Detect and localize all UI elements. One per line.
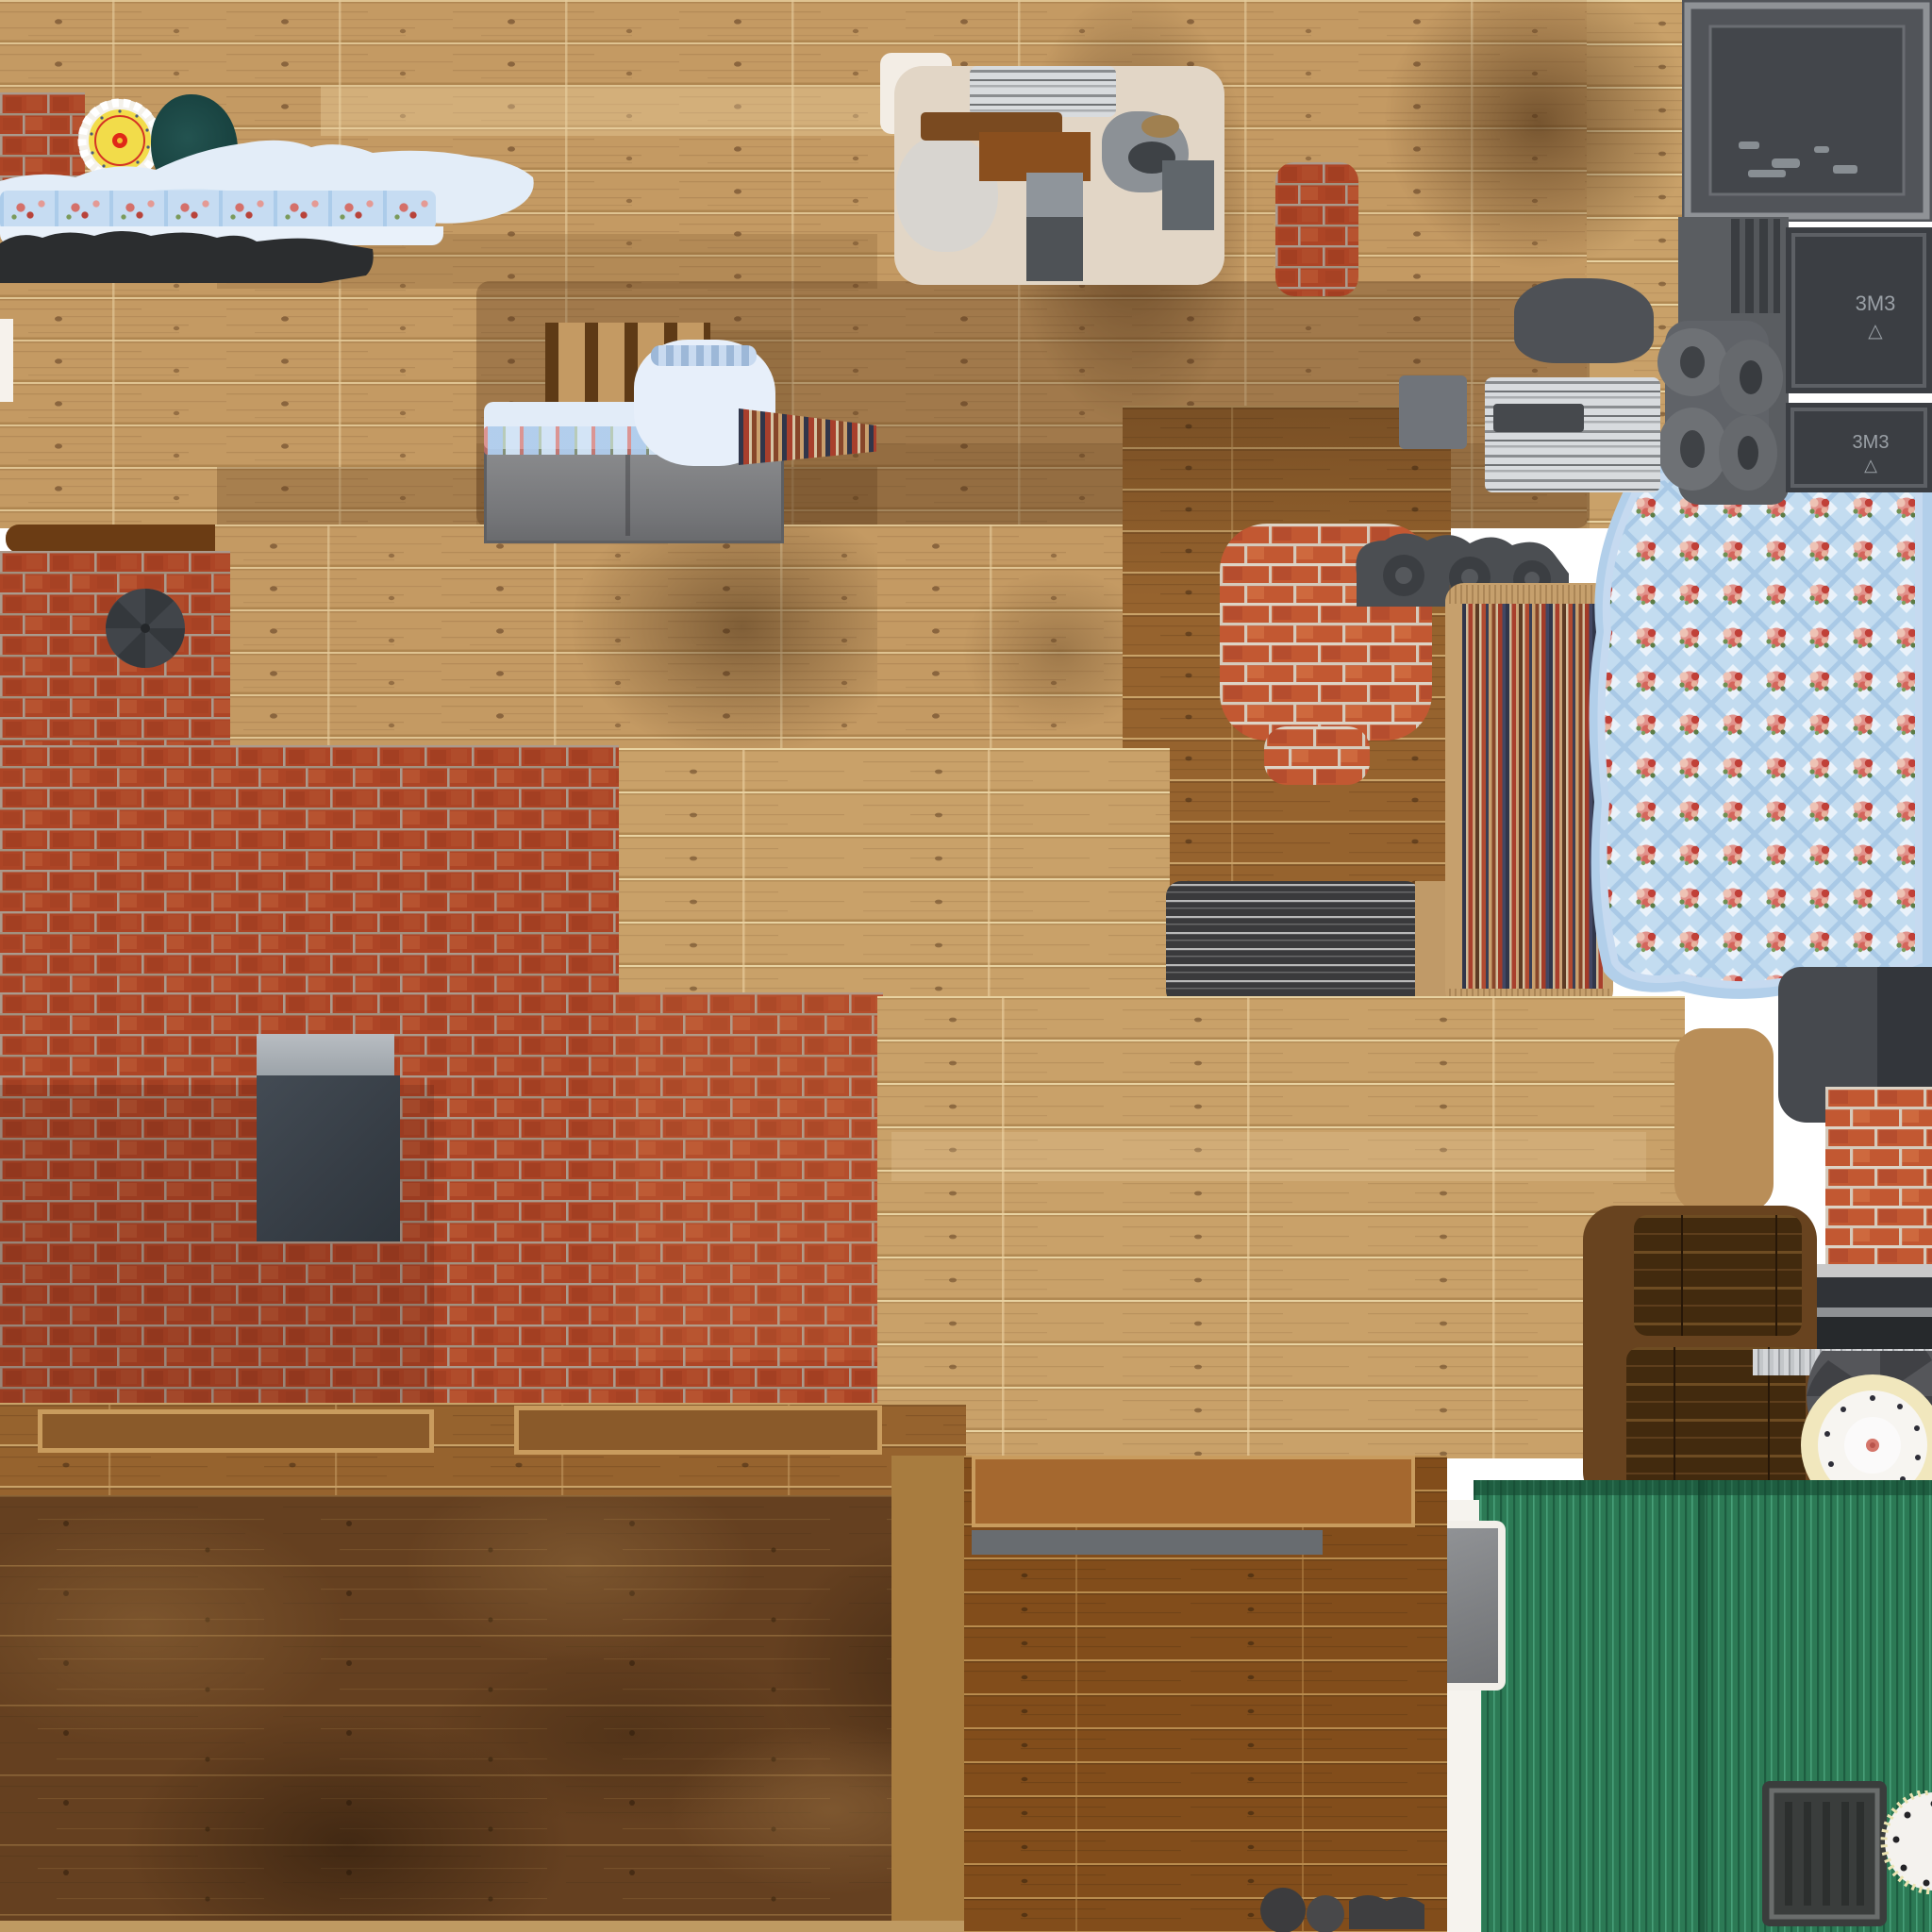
- svg-text:△: △: [1864, 456, 1877, 475]
- svg-text:3M3: 3M3: [1853, 432, 1890, 453]
- svg-text:3M3: 3M3: [1856, 291, 1896, 315]
- svg-text:△: △: [1868, 321, 1883, 341]
